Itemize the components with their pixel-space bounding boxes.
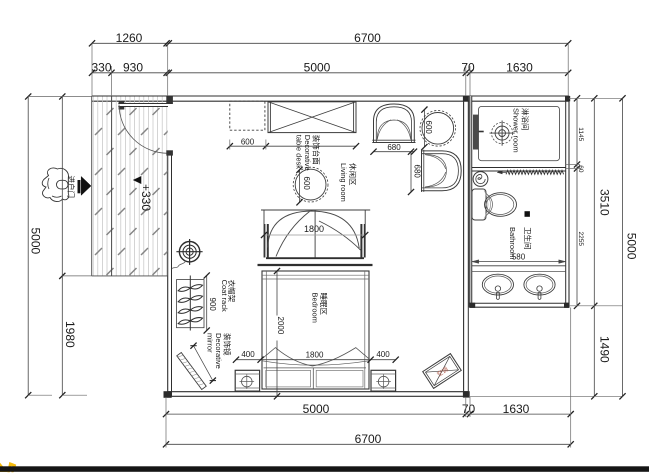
svg-text:600: 600 <box>424 121 433 135</box>
svg-text:1260: 1260 <box>116 31 143 45</box>
svg-text:6700: 6700 <box>354 31 381 45</box>
svg-text:580: 580 <box>512 252 526 261</box>
svg-text:淋浴间: 淋浴间 <box>521 108 531 131</box>
svg-text:930: 930 <box>123 60 143 74</box>
svg-text:2000: 2000 <box>276 317 285 335</box>
svg-text:3510: 3510 <box>597 189 611 216</box>
svg-text:6700: 6700 <box>355 432 382 446</box>
svg-text:60: 60 <box>577 165 584 173</box>
svg-text:5000: 5000 <box>29 228 43 255</box>
svg-text:5000: 5000 <box>303 402 330 416</box>
svg-text:400: 400 <box>241 350 255 359</box>
svg-text:1630: 1630 <box>506 60 533 74</box>
svg-text:600: 600 <box>241 138 255 147</box>
svg-text:680: 680 <box>413 165 422 179</box>
svg-text:1980: 1980 <box>63 321 77 348</box>
svg-text:Bedroom: Bedroom <box>311 293 320 323</box>
svg-text:600: 600 <box>302 177 311 191</box>
svg-text:2255: 2255 <box>577 232 584 247</box>
svg-text:1145: 1145 <box>577 127 584 141</box>
svg-text:table desk: table desk <box>295 135 304 169</box>
svg-text:Living room: Living room <box>339 163 348 202</box>
svg-text:Shower room: Shower room <box>512 108 521 153</box>
svg-text:1490: 1490 <box>597 336 611 363</box>
svg-text:330: 330 <box>91 60 111 74</box>
svg-text:装饰台面: 装饰台面 <box>312 135 322 165</box>
svg-text:卫生间: 卫生间 <box>523 227 533 250</box>
svg-text:70: 70 <box>461 60 475 74</box>
svg-text:400: 400 <box>376 350 390 359</box>
svg-text:1800: 1800 <box>306 350 324 359</box>
svg-text:5000: 5000 <box>625 233 639 260</box>
svg-text:进户门: 进户门 <box>67 176 77 199</box>
svg-text:Coat rack: Coat rack <box>220 280 229 312</box>
svg-text:1800: 1800 <box>304 224 324 234</box>
svg-text:休闲区: 休闲区 <box>348 163 358 186</box>
svg-text:900: 900 <box>208 298 217 312</box>
svg-text:1630: 1630 <box>503 402 530 416</box>
svg-text:680: 680 <box>387 143 401 152</box>
svg-text:+330: +330 <box>139 184 153 211</box>
svg-text:装饰镜: 装饰镜 <box>223 333 233 356</box>
svg-text:5000: 5000 <box>304 60 331 74</box>
svg-text:mirror: mirror <box>206 333 215 353</box>
